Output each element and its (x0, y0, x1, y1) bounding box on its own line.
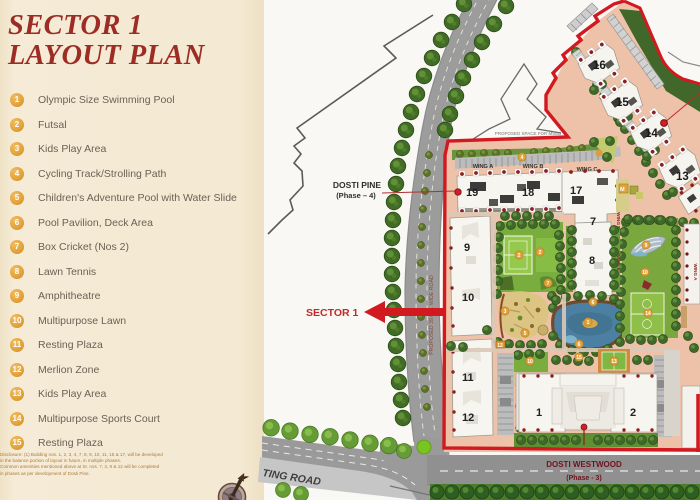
svg-text:12: 12 (462, 412, 474, 424)
svg-text:8: 8 (589, 255, 595, 267)
svg-text:9: 9 (645, 243, 648, 249)
svg-text:11: 11 (462, 372, 474, 384)
svg-text:5: 5 (524, 331, 527, 337)
svg-text:9: 9 (464, 242, 470, 254)
svg-text:3: 3 (504, 309, 507, 315)
svg-text:1: 1 (587, 320, 590, 326)
svg-text:2: 2 (630, 407, 636, 419)
svg-text:17: 17 (570, 185, 582, 197)
svg-text:SECTOR 1: SECTOR 1 (306, 307, 358, 319)
svg-text:2: 2 (518, 253, 521, 259)
svg-text:2: 2 (539, 250, 542, 256)
svg-text:1: 1 (536, 407, 542, 419)
svg-text:WING A: WING A (473, 164, 494, 170)
svg-text:14: 14 (645, 128, 658, 140)
svg-text:13: 13 (611, 359, 617, 365)
svg-text:(Phase – 4): (Phase – 4) (336, 191, 376, 200)
svg-text:DOSTI WESTWOOD: DOSTI WESTWOOD (546, 460, 622, 469)
svg-text:7: 7 (590, 216, 596, 228)
svg-text:10: 10 (462, 292, 474, 304)
svg-text:10: 10 (642, 270, 648, 276)
svg-text:WING E: WING E (615, 253, 621, 271)
svg-text:6: 6 (592, 300, 595, 306)
svg-text:WING A: WING A (693, 264, 698, 282)
svg-text:4: 4 (521, 155, 524, 161)
svg-text:15: 15 (576, 355, 582, 361)
svg-text:16: 16 (593, 60, 606, 72)
svg-text:WING D: WING D (615, 212, 621, 230)
svg-text:10: 10 (527, 359, 533, 365)
svg-text:14: 14 (645, 311, 651, 317)
svg-text:DOSTI PINE: DOSTI PINE (333, 180, 382, 190)
svg-text:M: M (620, 187, 625, 193)
svg-text:7: 7 (547, 281, 550, 287)
svg-text:(Phase - 3): (Phase - 3) (566, 475, 601, 482)
svg-text:19: 19 (466, 187, 478, 199)
svg-text:PROPOSED SPACE FOR MSEB: PROPOSED SPACE FOR MSEB (495, 131, 561, 136)
svg-text:6: 6 (578, 342, 581, 348)
svg-text:12: 12 (497, 343, 503, 349)
svg-text:15: 15 (616, 97, 629, 109)
svg-text:18: 18 (522, 187, 534, 199)
svg-text:13: 13 (676, 171, 689, 183)
